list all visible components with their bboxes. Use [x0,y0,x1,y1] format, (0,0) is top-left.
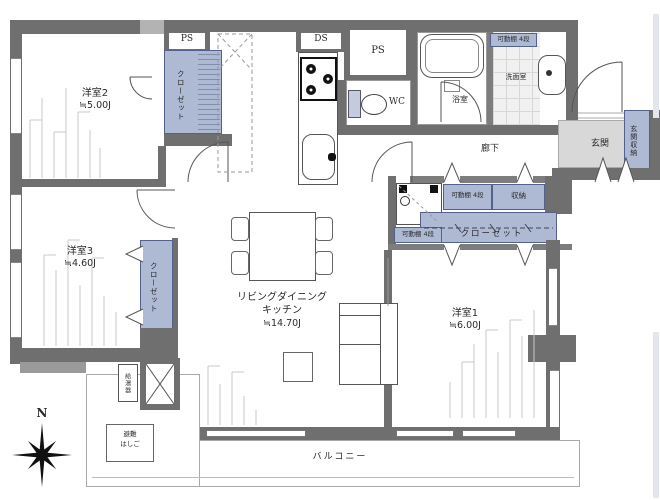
shelf-label-1: 可動棚 4段 [443,192,492,199]
bifold-door [444,163,460,182]
bedroom2-name: 洋室2 [55,88,135,99]
burner-icon [306,64,333,95]
closet-label-bedroom3: クローゼット [149,250,157,324]
ps-label-1: PS [169,35,205,45]
bedroom3-area: ≒4.60J [40,259,120,269]
floorplan: 洋室2 ≒5.00J 洋室3 ≒4.60J 洋室1 ≒6.00J リビングダイニ… [0,0,660,500]
closet-label-bedroom2: クローゼット [176,60,184,130]
ldk-name-2: キッチン [222,305,342,316]
bifold-door [517,163,533,182]
bedroom1-name: 洋室1 [425,308,505,319]
washroom-label: 洗面室 [493,74,539,82]
escape-ladder-line2: はしご [106,441,154,448]
water-heater-label: 給湯器 [123,367,130,399]
entrance-storage-label: 玄関収納 [629,116,637,166]
entrance-threshold [578,113,624,118]
bifold-door [595,158,611,182]
storage-label: 収納 [492,192,545,200]
ldk-area: ≒14.70J [222,319,342,329]
closet-label-bedroom1: クローゼット [452,230,532,239]
escape-ladder-line1: 避難 [106,431,154,438]
balcony-label: バルコニー [280,453,400,463]
north-arrow-icon [12,423,72,487]
entrance-label: 玄関 [578,140,622,150]
bifold-door [444,245,460,265]
bath-label: 浴室 [440,96,480,105]
shelf-label-2: 可動棚 4段 [394,231,442,238]
corridor-label: 廊下 [468,145,512,155]
bifold-door [126,309,143,325]
ps-label-2: PS [350,45,406,56]
ldk-name-1: リビングダイニング [222,292,342,303]
shelf-label-washroom: 可動棚 4段 [490,36,537,43]
door-arc-bedroom3 [137,190,175,228]
fridge-space [218,34,252,172]
north-label: N [30,407,54,420]
washer-cross [399,186,438,222]
bedroom1-area: ≒6.00J [425,321,505,331]
bedroom2-area: ≒5.00J [55,101,135,111]
bedroom3-name: 洋室3 [40,246,120,257]
door-arc-living [188,142,228,182]
door-arc-corridor [372,142,412,182]
bifold-door [517,245,533,265]
bifold-door [126,246,143,262]
ds-label: DS [301,35,341,45]
door-arc-entrance [572,62,622,112]
shaft-cross [146,364,174,404]
wc-label: WC [383,98,411,108]
